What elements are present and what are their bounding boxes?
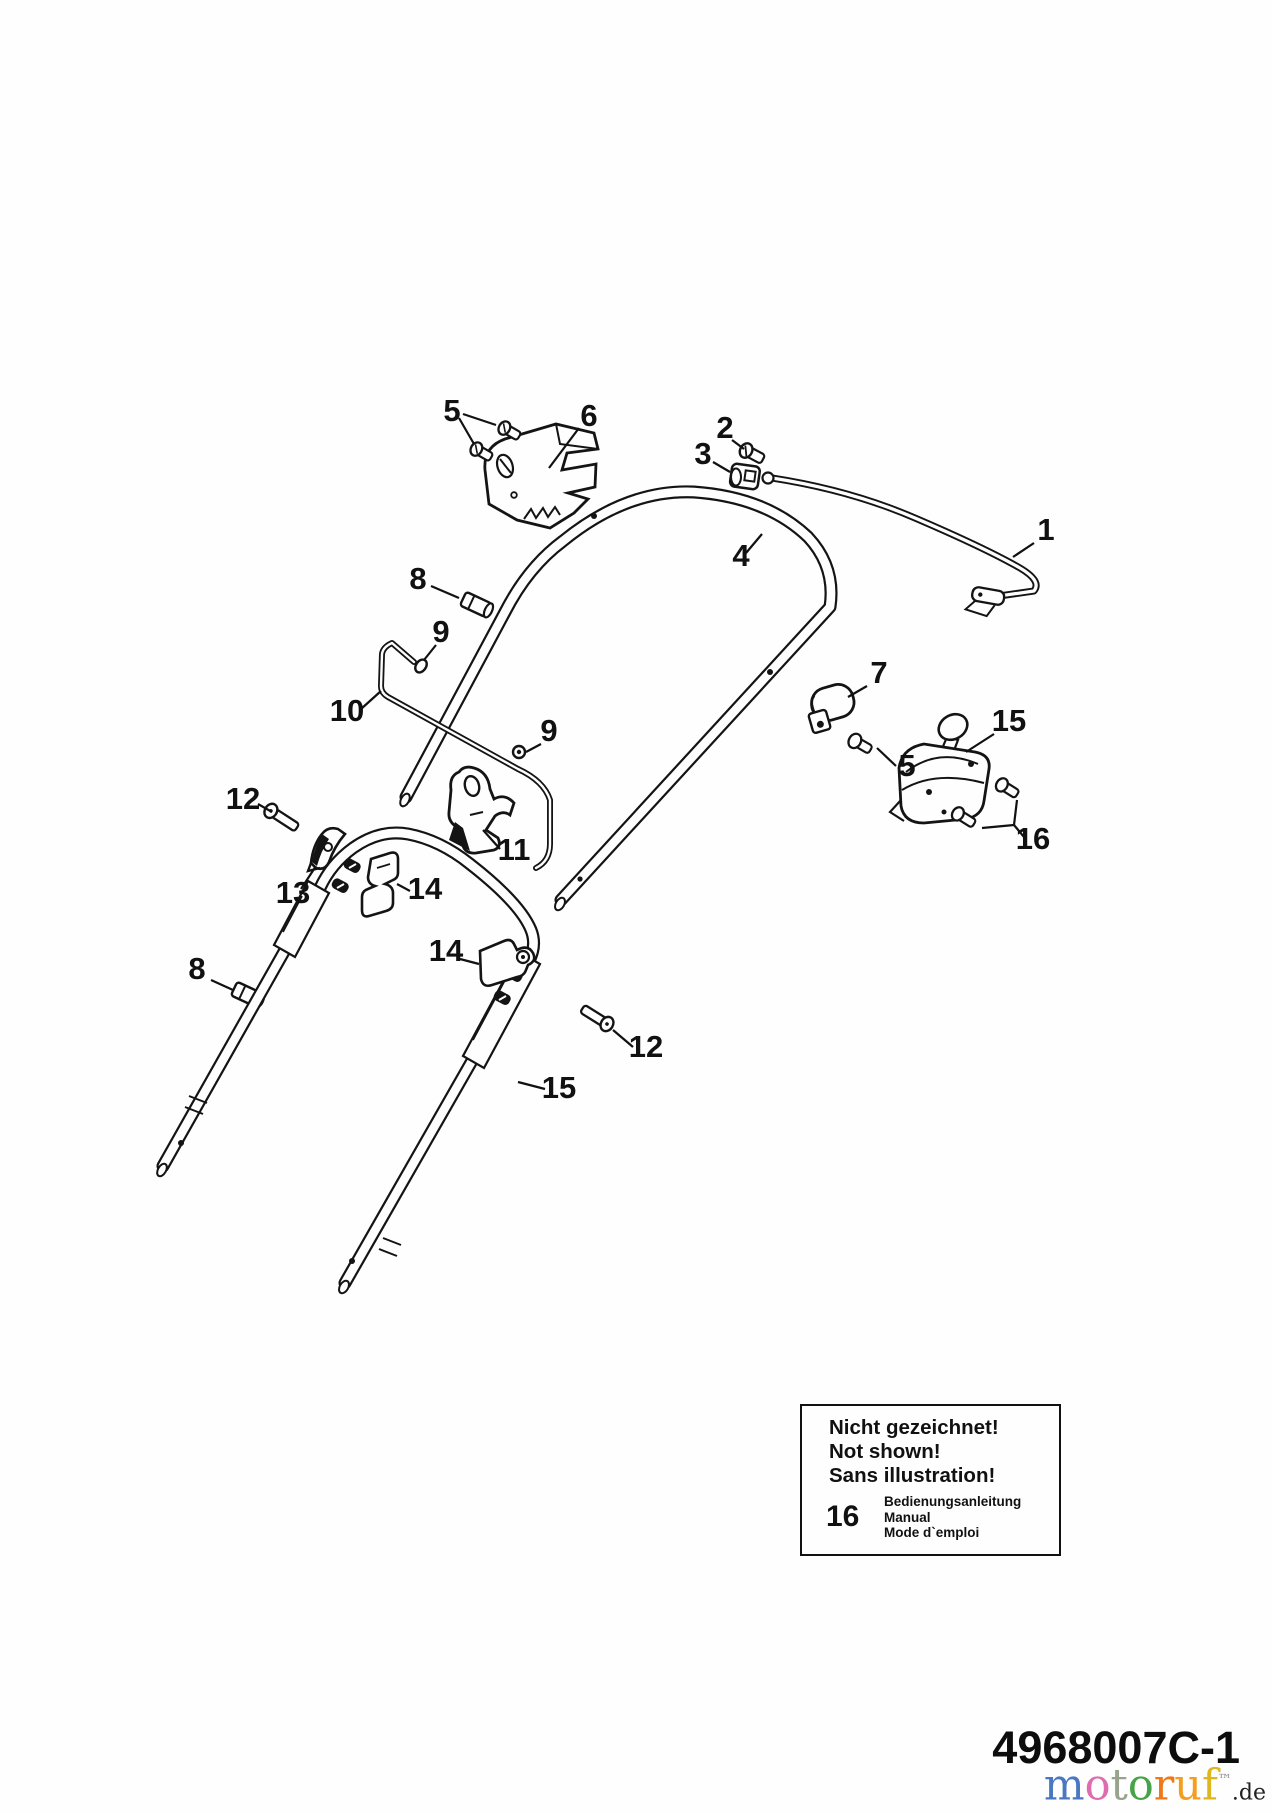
cam-lever-a <box>362 853 398 917</box>
bolt-upper-left <box>262 801 301 834</box>
info-item-number: 16 <box>826 1500 884 1534</box>
part-number-label: 5 <box>898 748 915 783</box>
leader-line <box>463 414 496 425</box>
part-number-label: 8 <box>409 561 426 596</box>
info-item-en: Manual <box>884 1510 1021 1526</box>
part-number-label: 7 <box>870 655 887 690</box>
logo-letter: t <box>1111 1760 1128 1810</box>
footer: 4968007C-1 motoruf™.de <box>806 1722 1266 1813</box>
info-title-fr: Sans illustration! <box>829 1464 1059 1488</box>
lower-handlebar <box>155 833 540 1295</box>
part-number-label: 11 <box>498 832 531 867</box>
part-number-label: 12 <box>226 781 260 816</box>
part-number-label: 14 <box>429 933 464 968</box>
part-number-label: 15 <box>992 703 1026 738</box>
cable-clip <box>802 681 859 734</box>
info-title-de: Nicht gezeichnet! <box>829 1416 1059 1440</box>
logo-letter: o <box>1128 1760 1154 1810</box>
leader-line <box>877 748 896 766</box>
not-shown-info-box: Nicht gezeichnet! Not shown! Sans illust… <box>800 1404 1061 1556</box>
logo-letter: r <box>1154 1760 1175 1810</box>
part-number-label: 6 <box>580 398 597 433</box>
info-title-en: Not shown! <box>829 1440 1059 1464</box>
leader-line <box>982 825 1014 828</box>
leader-line <box>459 418 474 444</box>
part-number-label: 15 <box>542 1070 576 1105</box>
cable-clamp-screw <box>737 441 766 466</box>
part-number-label: 9 <box>432 614 449 649</box>
part-number-label: 4 <box>732 538 750 573</box>
part-number-label: 3 <box>694 436 711 471</box>
info-item-de: Bedienungsanleitung <box>884 1494 1021 1510</box>
logo-letter: o <box>1085 1760 1111 1810</box>
part-number-label: 2 <box>716 410 733 445</box>
leader-line <box>211 980 233 990</box>
logo-suffix: .de <box>1232 1780 1266 1805</box>
leader-line <box>1013 543 1034 557</box>
parts-diagram: 56234189109111213141481215715516 <box>0 0 1272 1800</box>
part-number-label: 13 <box>276 875 310 910</box>
switch-screw-b <box>468 440 494 463</box>
ring-lower <box>513 746 525 758</box>
leader-line <box>713 462 730 472</box>
mount-screw-16a <box>994 776 1021 800</box>
diagram-canvas: 56234189109111213141481215715516 <box>0 0 1272 1800</box>
bracket-screw-right <box>846 731 874 756</box>
part-number-label: 16 <box>1016 821 1050 856</box>
bolt-lower-right <box>578 1002 616 1033</box>
leader-line <box>431 586 459 598</box>
part-number-label: 8 <box>188 951 205 986</box>
switch-housing <box>485 424 598 528</box>
part-number-label: 9 <box>540 713 557 748</box>
part-number-label: 10 <box>330 693 364 728</box>
part-number-label: 14 <box>408 871 443 906</box>
leader-line <box>966 734 994 752</box>
part-number-label: 1 <box>1037 512 1054 547</box>
info-item-fr: Mode d`emploi <box>884 1525 1021 1541</box>
part-number-label: 5 <box>443 393 460 428</box>
throttle-cable <box>763 473 1037 619</box>
part-number-label: 12 <box>629 1029 663 1064</box>
leader-line <box>526 744 541 752</box>
logo-letter: f <box>1202 1760 1218 1810</box>
cable-clamp <box>729 463 760 490</box>
cable-adjuster-upper <box>460 592 495 619</box>
logo-letter: ™ <box>1218 1772 1232 1788</box>
logo-letter: m <box>1044 1760 1085 1810</box>
logo-letter: u <box>1174 1760 1202 1810</box>
